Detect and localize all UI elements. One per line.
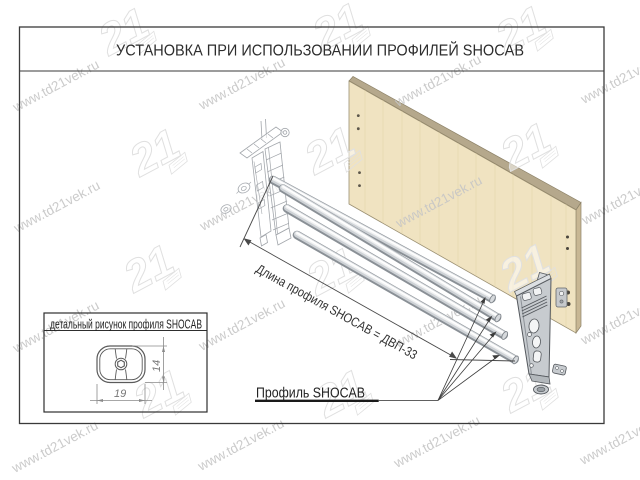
svg-text:Профиль SHOCAB: Профиль SHOCAB	[256, 385, 365, 402]
svg-text:19: 19	[114, 388, 126, 400]
svg-text:14: 14	[151, 360, 163, 372]
svg-text:УСТАНОВКА ПРИ ИСПОЛЬЗОВАНИИ ПР: УСТАНОВКА ПРИ ИСПОЛЬЗОВАНИИ ПРОФИЛЕЙ SHO…	[116, 41, 524, 60]
svg-text:детальный рисунок профиля SHOC: детальный рисунок профиля SHOCAB	[50, 317, 202, 332]
